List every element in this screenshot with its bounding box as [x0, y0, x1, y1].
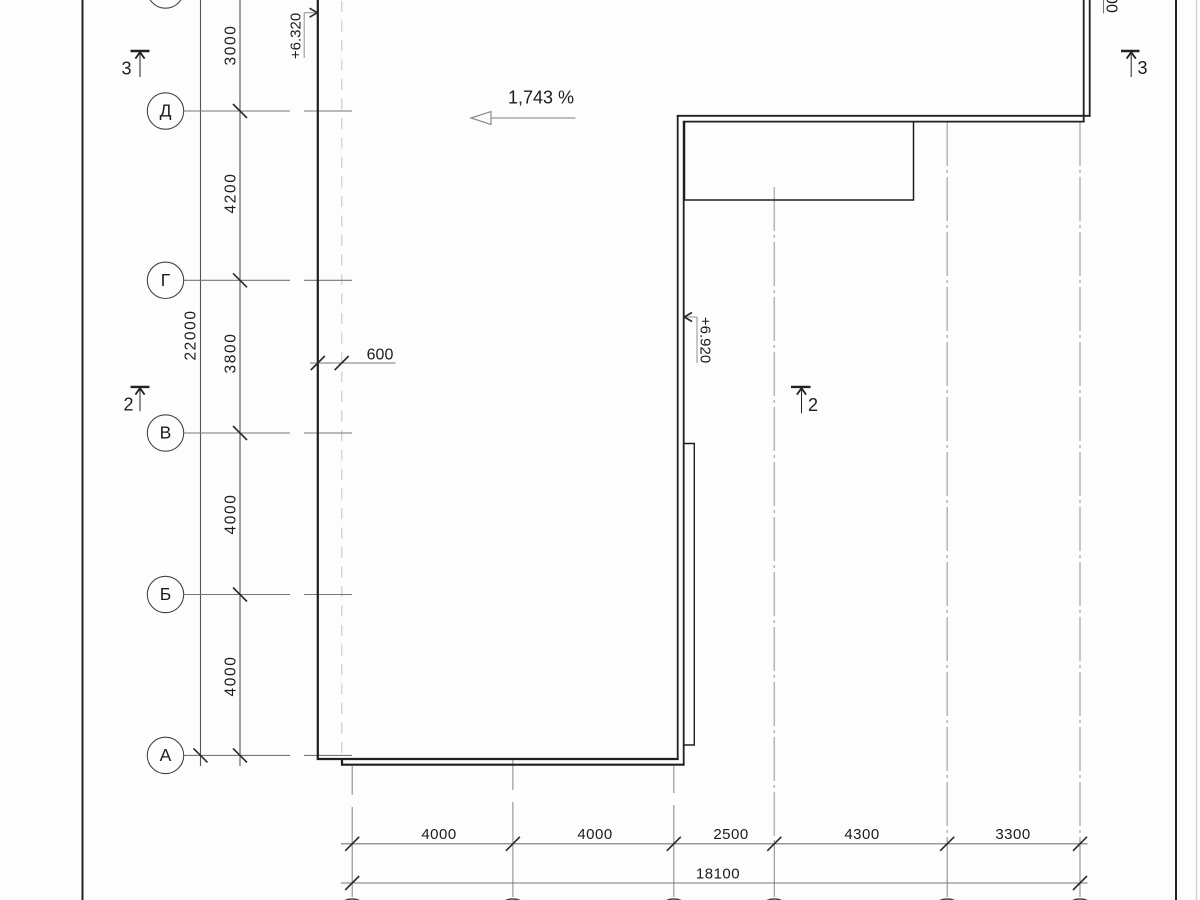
svg-text:2: 2	[808, 395, 818, 415]
svg-text:4000: 4000	[223, 494, 240, 535]
svg-text:Г: Г	[161, 270, 171, 290]
svg-text:1,743 %: 1,743 %	[508, 88, 574, 108]
svg-text:А: А	[160, 745, 172, 765]
svg-text:3: 3	[121, 59, 131, 79]
svg-text:3000: 3000	[223, 25, 240, 66]
svg-text:22000: 22000	[183, 309, 200, 360]
svg-text:4000: 4000	[223, 656, 240, 697]
svg-text:2500: 2500	[713, 826, 748, 843]
svg-text:2: 2	[123, 395, 133, 415]
svg-text:18100: 18100	[696, 866, 740, 883]
svg-text:3: 3	[1137, 58, 1147, 78]
svg-text:600: 600	[1103, 0, 1120, 13]
svg-text:4000: 4000	[577, 826, 612, 843]
svg-text:600: 600	[367, 347, 394, 364]
svg-text:3300: 3300	[995, 826, 1030, 843]
svg-text:3800: 3800	[223, 333, 240, 374]
svg-text:4000: 4000	[421, 826, 456, 843]
svg-text:+6.320: +6.320	[288, 13, 305, 59]
svg-text:+6.920: +6.920	[697, 317, 714, 363]
svg-text:Д: Д	[160, 101, 172, 121]
svg-text:В: В	[160, 423, 172, 443]
svg-text:Б: Б	[160, 584, 171, 604]
svg-text:4300: 4300	[844, 826, 879, 843]
svg-text:4200: 4200	[223, 173, 240, 214]
